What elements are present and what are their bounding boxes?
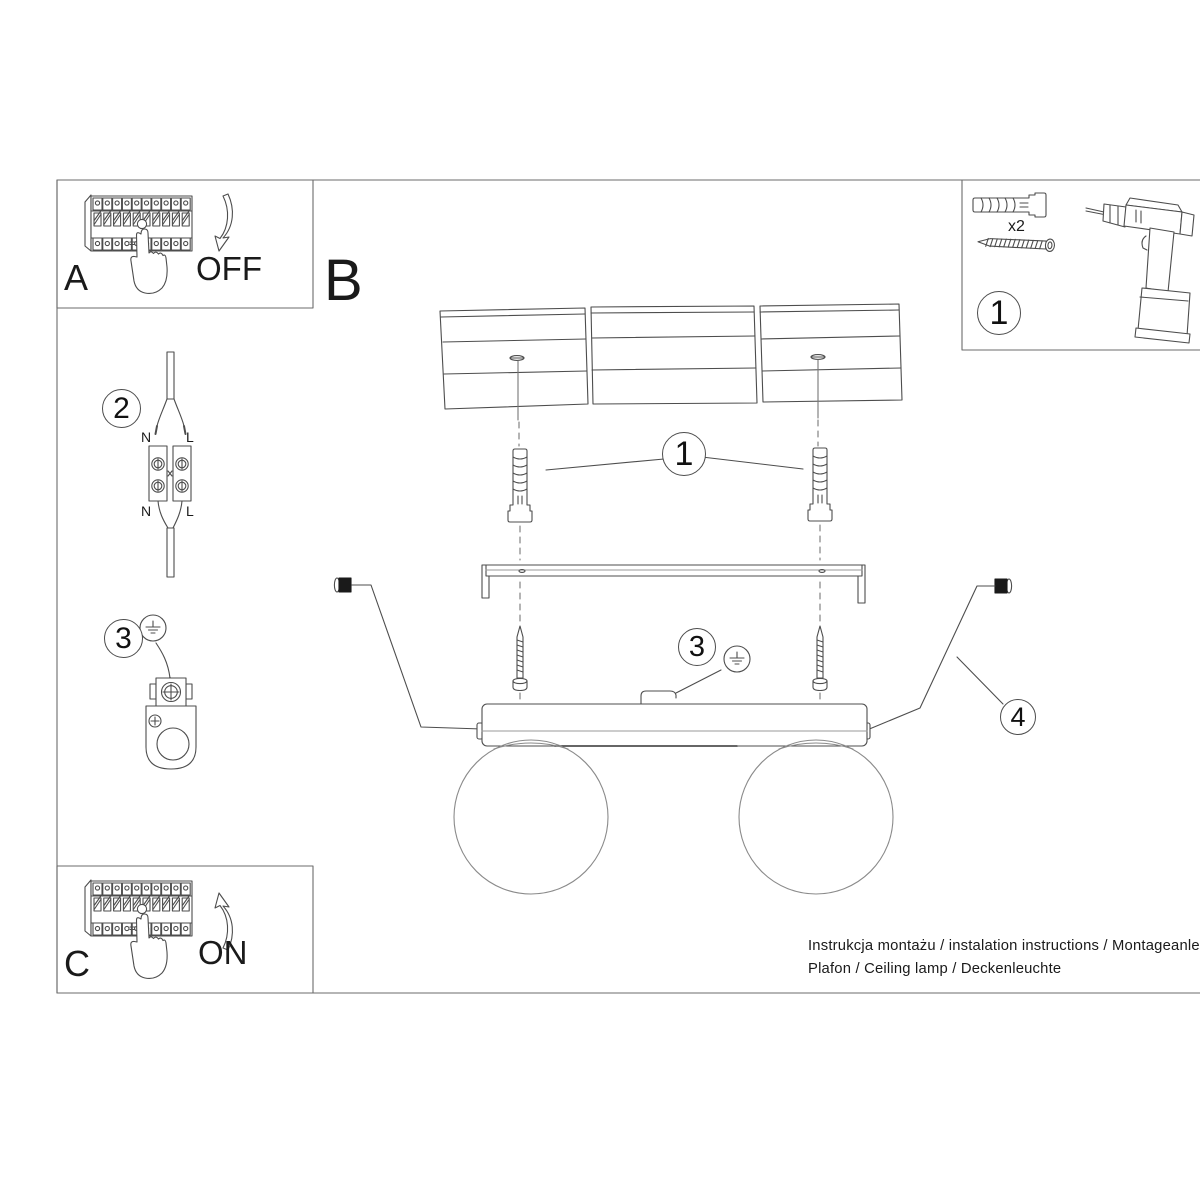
drill-icon	[1086, 198, 1194, 343]
glass-globe-right	[739, 740, 893, 894]
wall-anchor-left	[508, 449, 532, 522]
screw-icon	[978, 234, 1055, 252]
side-screw-left	[334, 578, 482, 729]
step-3-number: 3	[115, 622, 132, 656]
instruction-sheet: A OFF B C ON 2 3 N L N L 1 x2 1 3 4 Inst…	[0, 0, 1200, 1200]
section-b-label: B	[324, 252, 363, 310]
side-screw-right	[867, 579, 1012, 730]
on-label: ON	[198, 936, 248, 969]
callout-1-number: 1	[675, 435, 694, 474]
mounting-screw-right	[813, 626, 827, 691]
wire-connection-icon	[149, 352, 191, 577]
off-label: OFF	[196, 252, 262, 285]
wire-label-l-bottom: L	[186, 504, 194, 518]
glass-globe-left	[454, 740, 608, 894]
callout-3-badge: 3	[678, 628, 716, 666]
sheet-frame	[57, 180, 1200, 993]
screw-quantity-label: x2	[1008, 219, 1025, 235]
parts-box-number: 1	[990, 294, 1009, 333]
step-2-badge: 2	[102, 389, 141, 428]
mounting-bracket	[482, 565, 865, 603]
footer-line-2: Plafon / Ceiling lamp / Deckenleuchte	[808, 962, 1061, 977]
ceiling-panel	[440, 304, 902, 420]
ground-symbol-main	[724, 646, 750, 672]
wall-anchor-right	[808, 448, 832, 521]
ground-wire-hook	[641, 670, 721, 704]
step-3-badge: 3	[104, 619, 143, 658]
callout-1-badge: 1	[662, 432, 706, 476]
callout-3-number: 3	[689, 631, 705, 664]
mounting-screw-left	[513, 626, 527, 691]
line-art-canvas	[0, 0, 1200, 1200]
callout-4-number: 4	[1010, 702, 1025, 733]
section-c-label: C	[64, 946, 90, 982]
wire-label-n-bottom: N	[141, 504, 151, 518]
section-a-label: A	[64, 260, 88, 296]
ground-terminal-icon	[140, 615, 196, 769]
canopy-callout-leader	[957, 657, 1003, 704]
wire-label-n-top: N	[141, 430, 151, 444]
parts-box-badge: 1	[977, 291, 1021, 335]
step-2-number: 2	[113, 392, 130, 426]
wire-label-l-top: L	[186, 430, 194, 444]
wall-anchor-icon	[973, 193, 1046, 217]
footer-line-1: Instrukcja montażu / instalation instruc…	[808, 939, 1200, 954]
callout-4-badge: 4	[1000, 699, 1036, 735]
